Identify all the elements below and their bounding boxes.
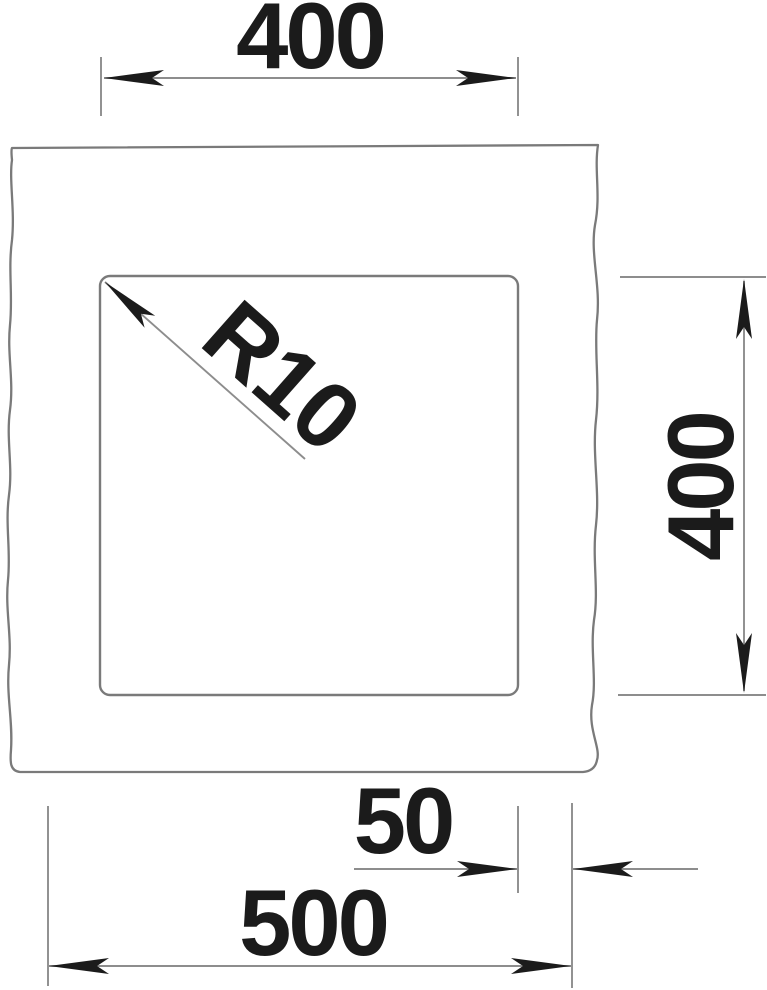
dimension-bowl-width: 400	[101, 0, 518, 116]
dimension-label-bowl-width: 400	[236, 0, 384, 88]
drawing-canvas: 400 400 R10 50	[0, 0, 767, 990]
dimension-label-edge-offset: 50	[354, 768, 453, 873]
dimension-bowl-depth: 400	[618, 277, 766, 695]
dimension-edge-offset: 50	[354, 768, 698, 988]
sink-dimension-drawing: 400 400 R10 50	[0, 0, 767, 990]
dimension-overall-width: 500	[48, 806, 571, 986]
dimension-label-bowl-depth: 400	[648, 413, 753, 561]
dimension-label-overall-width: 500	[239, 870, 387, 975]
